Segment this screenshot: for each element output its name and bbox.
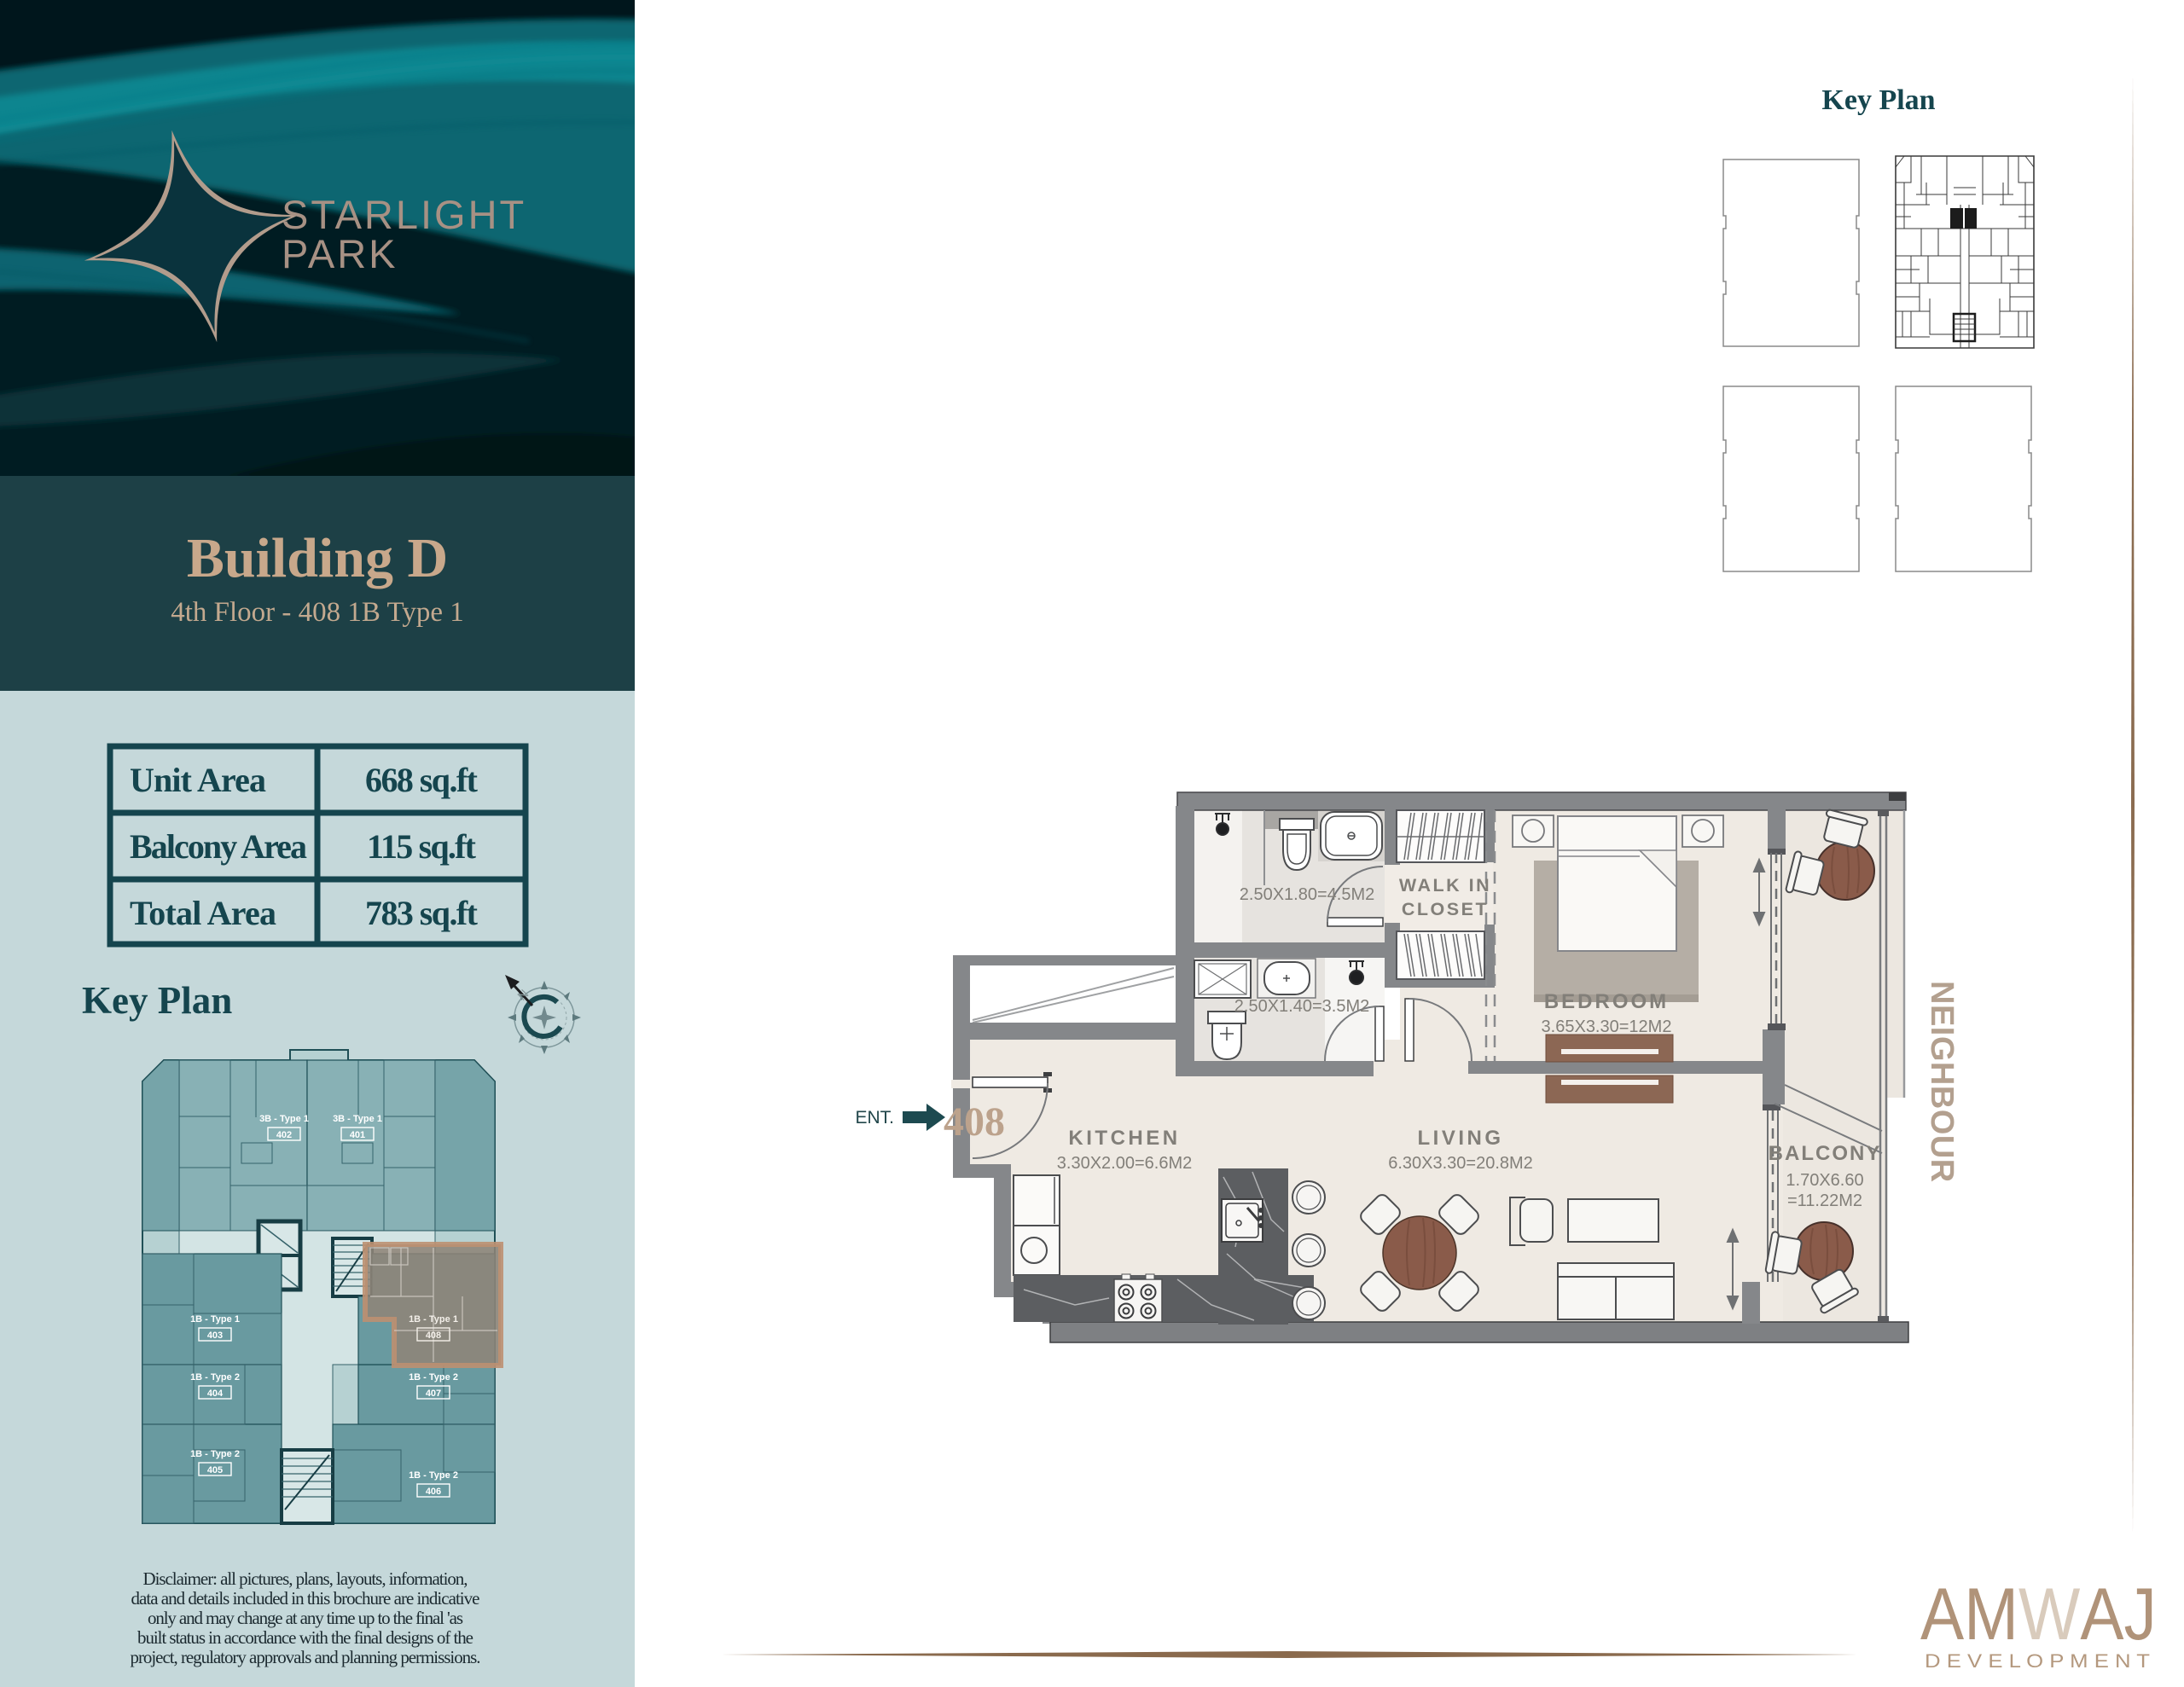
svg-text:Unit Area: Unit Area xyxy=(130,761,266,799)
svg-text:668 sq.ft: 668 sq.ft xyxy=(365,761,479,799)
svg-text:AJ: AJ xyxy=(2080,1574,2156,1655)
svg-text:Total Area: Total Area xyxy=(130,894,276,932)
svg-text:ENT.: ENT. xyxy=(855,1108,894,1128)
svg-text:401: 401 xyxy=(350,1130,365,1140)
svg-text:1B - Type 2: 1B - Type 2 xyxy=(190,1372,240,1383)
svg-text:1.70X6.60: 1.70X6.60 xyxy=(1786,1171,1863,1190)
svg-text:only and may change at any tim: only and may change at any time up to th… xyxy=(148,1608,463,1628)
svg-text:NEIGHBOUR: NEIGHBOUR xyxy=(1924,981,1960,1183)
svg-text:PARK: PARK xyxy=(282,231,398,276)
svg-text:783 sq.ft: 783 sq.ft xyxy=(365,894,479,932)
svg-text:CLOSET: CLOSET xyxy=(1402,899,1489,919)
svg-text:data and details included in t: data and details included in this brochu… xyxy=(131,1588,480,1609)
svg-text:6.30X3.30=20.8M2: 6.30X3.30=20.8M2 xyxy=(1388,1154,1533,1173)
svg-text:404: 404 xyxy=(207,1388,224,1399)
svg-text:3B - Type 1: 3B - Type 1 xyxy=(259,1114,309,1124)
svg-text:Key Plan: Key Plan xyxy=(1821,84,1935,116)
svg-text:3.65X3.30=12M2: 3.65X3.30=12M2 xyxy=(1542,1017,1672,1036)
svg-text:KITCHEN: KITCHEN xyxy=(1068,1127,1180,1150)
svg-text:408: 408 xyxy=(944,1099,1005,1145)
svg-text:1B - Type 2: 1B - Type 2 xyxy=(409,1470,458,1481)
svg-text:2.50X1.40=3.5M2: 2.50X1.40=3.5M2 xyxy=(1234,997,1369,1016)
svg-text:4th Floor - 408 1B Type 1: 4th Floor - 408 1B Type 1 xyxy=(171,597,464,628)
svg-text:Disclaimer: all pictures, plan: Disclaimer: all pictures, plans, layouts… xyxy=(143,1568,468,1589)
svg-text:408: 408 xyxy=(426,1330,441,1341)
svg-text:W: W xyxy=(2018,1574,2080,1655)
svg-text:Key Plan: Key Plan xyxy=(82,979,232,1022)
svg-text:built status in accordance wit: built status in accordance with the fina… xyxy=(137,1627,473,1648)
svg-text:1B - Type 1: 1B - Type 1 xyxy=(190,1314,240,1325)
svg-text:D E V E L O P M E N T: D E V E L O P M E N T xyxy=(1925,1650,2150,1672)
svg-text:Building D: Building D xyxy=(187,527,448,589)
svg-text:1B - Type 1: 1B - Type 1 xyxy=(409,1314,458,1325)
svg-text:2.50X1.80=4.5M2: 2.50X1.80=4.5M2 xyxy=(1240,885,1374,904)
svg-text:1B - Type 2: 1B - Type 2 xyxy=(409,1372,458,1383)
svg-text:407: 407 xyxy=(426,1388,441,1399)
svg-text:Balcony Area: Balcony Area xyxy=(130,827,307,866)
svg-text:406: 406 xyxy=(426,1487,441,1497)
svg-text:LIVING: LIVING xyxy=(1417,1127,1503,1150)
svg-text:project, regulatory approvals: project, regulatory approvals and planni… xyxy=(131,1647,481,1667)
svg-text:AM: AM xyxy=(1920,1574,2018,1655)
svg-text:=11.22M2: =11.22M2 xyxy=(1787,1191,1862,1210)
svg-text:403: 403 xyxy=(207,1330,223,1341)
svg-text:BALCONY: BALCONY xyxy=(1769,1142,1882,1165)
svg-text:115 sq.ft: 115 sq.ft xyxy=(367,827,477,866)
svg-text:WALK IN: WALK IN xyxy=(1399,875,1491,896)
svg-text:3B - Type 1: 3B - Type 1 xyxy=(333,1114,382,1124)
svg-text:1B - Type 2: 1B - Type 2 xyxy=(190,1449,240,1459)
svg-text:405: 405 xyxy=(207,1465,223,1475)
svg-text:3.30X2.00=6.6M2: 3.30X2.00=6.6M2 xyxy=(1057,1154,1192,1173)
svg-text:BEDROOM: BEDROOM xyxy=(1544,990,1669,1013)
svg-text:402: 402 xyxy=(276,1130,292,1140)
